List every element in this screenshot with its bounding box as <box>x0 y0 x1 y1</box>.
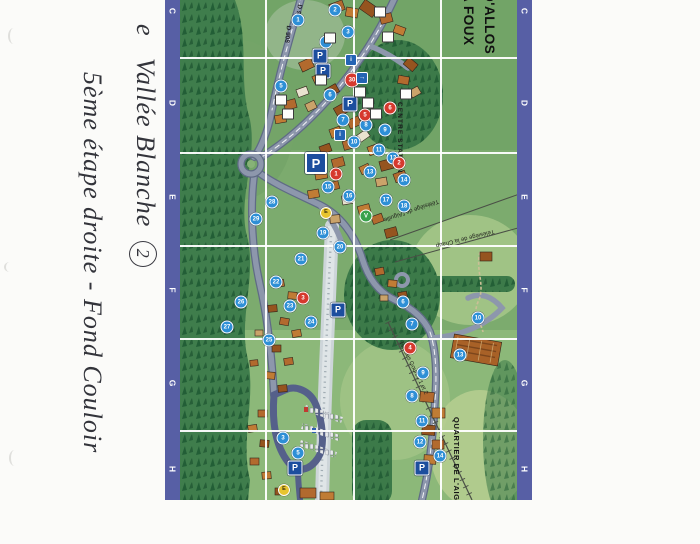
parking-sign: P <box>343 97 358 112</box>
poi-marker: 24 <box>305 316 318 329</box>
poi-marker: 18 <box>398 200 411 213</box>
poi-marker: 12 <box>414 436 427 449</box>
poi-marker-red: 4 <box>404 342 417 355</box>
handwriting-line1-prefix: e <box>131 24 160 37</box>
pictogram-sign <box>282 109 294 120</box>
poi-marker: 10 <box>348 136 361 149</box>
poi-marker: 9 <box>417 367 430 380</box>
poi-marker: 20 <box>334 241 347 254</box>
scanned-page: { "note": { "fragment": "e", "line1_pref… <box>0 0 700 500</box>
poi-marker-red: 6 <box>384 102 397 115</box>
grid-row-label-h: H <box>168 462 178 477</box>
poi-marker: 22 <box>270 276 283 289</box>
poi-marker: 16 <box>343 190 356 203</box>
info-sign: → <box>356 72 368 84</box>
poi-marker: 19 <box>317 227 330 240</box>
poi-marker: 9 <box>379 124 392 137</box>
poi-marker: 3 <box>277 432 290 445</box>
poi-marker: 6 <box>324 89 337 102</box>
poi-marker: 17 <box>380 194 393 207</box>
grid-row-label-c: C <box>520 4 530 19</box>
poi-marker-yellow: E <box>278 484 290 496</box>
grid-row-label-e: E <box>520 190 530 205</box>
grid-strip-right <box>517 0 532 500</box>
poi-marker: 13 <box>364 166 377 179</box>
poi-marker: 2 <box>329 4 342 17</box>
grid-row-label-g: G <box>168 376 178 391</box>
grid-row-label-d: D <box>168 96 178 111</box>
parking-sign: P <box>313 49 328 64</box>
poi-marker: 11 <box>416 415 429 428</box>
parking-sign: P <box>288 461 303 476</box>
pictogram-sign <box>315 75 327 86</box>
poi-marker: 26 <box>235 296 248 309</box>
scan-smudge <box>4 262 15 272</box>
pictogram-sign <box>275 95 287 106</box>
poi-marker: 6 <box>397 296 410 309</box>
grid-row-label-f: F <box>168 283 178 298</box>
poi-marker: 28 <box>266 196 279 209</box>
poi-marker: 13 <box>454 349 467 362</box>
village-map: D'ALLOS A FOUX CENTRE STATION QUARTIER D… <box>165 0 532 500</box>
pictogram-sign <box>362 98 374 109</box>
handwritten-note: e Vallée Blanche 2 5ème étape droite - F… <box>66 0 172 544</box>
poi-marker: 1 <box>292 14 305 27</box>
info-sign: i <box>345 54 357 66</box>
poi-marker: 7 <box>406 318 419 331</box>
poi-marker: 27 <box>221 321 234 334</box>
scan-smudge <box>8 28 19 44</box>
pictogram-sign <box>400 89 412 100</box>
poi-marker-green: V <box>360 210 373 223</box>
handwriting-line1-text: Vallée Blanche <box>131 58 160 227</box>
grid-row-label-f: F <box>520 283 530 298</box>
grid-row-label-g: G <box>520 376 530 391</box>
poi-marker: 21 <box>295 253 308 266</box>
scan-smudge <box>9 450 20 466</box>
parking-sign: P <box>415 461 430 476</box>
poi-marker-red: 3 <box>297 292 310 305</box>
pictogram-sign <box>382 32 394 43</box>
poi-marker: 23 <box>284 300 297 313</box>
grid-strip-left <box>165 0 180 500</box>
handwriting-circled-number: 2 <box>129 241 157 267</box>
poi-marker: 14 <box>398 174 411 187</box>
map-markers: PPPPPPP301234567891011121314151617181920… <box>180 0 517 500</box>
pictogram-sign <box>374 7 386 18</box>
handwriting-line-2: 5ème étape droite - Fond Couloir <box>66 0 119 544</box>
grid-row-label-e: E <box>168 190 178 205</box>
parking-sign: P <box>331 303 346 318</box>
pictogram-sign <box>370 109 382 120</box>
poi-marker: 29 <box>250 213 263 226</box>
grid-row-label-h: H <box>520 462 530 477</box>
poi-marker: 5 <box>292 447 305 460</box>
info-sign: i <box>334 129 346 141</box>
poi-marker-yellow: E <box>320 207 332 219</box>
poi-marker: 3 <box>342 26 355 39</box>
poi-marker: 8 <box>406 390 419 403</box>
poi-marker: 15 <box>322 181 335 194</box>
poi-marker-red: 2 <box>393 157 406 170</box>
handwriting-line2-text: 5ème étape droite - Fond Couloir <box>78 72 107 453</box>
pictogram-sign <box>354 87 366 98</box>
poi-marker: 10 <box>472 312 485 325</box>
poi-marker: 14 <box>434 450 447 463</box>
poi-marker-red: 1 <box>330 168 343 181</box>
parking-sign: P <box>305 152 327 174</box>
poi-marker: 25 <box>263 334 276 347</box>
poi-marker: 11 <box>373 144 386 157</box>
poi-marker: 7 <box>337 114 350 127</box>
pictogram-sign <box>324 33 336 44</box>
grid-row-label-c: C <box>168 4 178 19</box>
grid-row-label-d: D <box>520 96 530 111</box>
poi-marker: 5 <box>275 80 288 93</box>
